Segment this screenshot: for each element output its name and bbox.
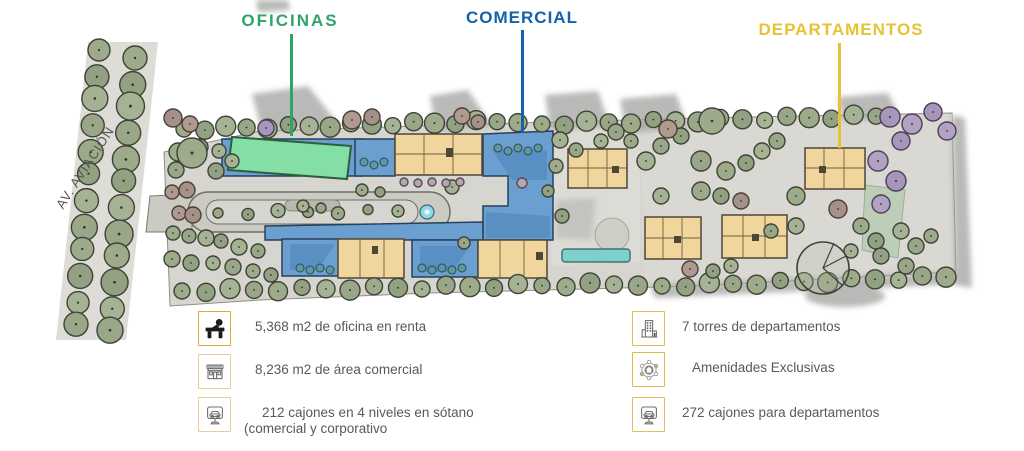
comercial-leader-line [521,30,524,133]
parking-sign-icon [632,397,665,432]
fact-text: 272 cajones para departamentos [682,397,879,421]
fact-towers: 7 torres de departamentos [632,311,840,346]
fact-commercial-area: 8,236 m2 de área comercial [198,354,422,389]
fact-parking-departments: 272 cajones para departamentos [632,397,879,432]
fact-text: 5,368 m2 de oficina en renta [255,311,426,335]
fact-amenities: Amenidades Exclusivas [632,352,835,387]
oficinas-leader-line [290,34,293,136]
fact-office-area: 5,368 m2 de oficina en renta [198,311,426,346]
departamentos-leader-line [838,43,841,148]
apartment-tower-icon [632,311,665,346]
fact-text: 8,236 m2 de área comercial [255,354,422,378]
amenities-icon [632,352,665,387]
zone-label-comercial: COMERCIAL [466,8,578,28]
site-plan-illustration [0,0,1024,451]
fact-text: 212 cajones en 4 niveles en sótano (come… [244,397,514,437]
zone-label-departamentos: DEPARTAMENTOS [758,20,923,40]
fact-text: 7 torres de departamentos [682,311,840,335]
parking-sign-icon [198,397,231,432]
storefront-icon [198,354,231,389]
office-desk-icon [198,311,231,346]
site-plan-slide: OFICINAS COMERCIAL DEPARTAMENTOS AV. AVI… [0,0,1024,451]
zone-label-oficinas: OFICINAS [241,11,338,31]
fact-parking-corporate: 212 cajones en 4 niveles en sótano (come… [198,397,514,437]
fact-text: Amenidades Exclusivas [692,352,835,376]
